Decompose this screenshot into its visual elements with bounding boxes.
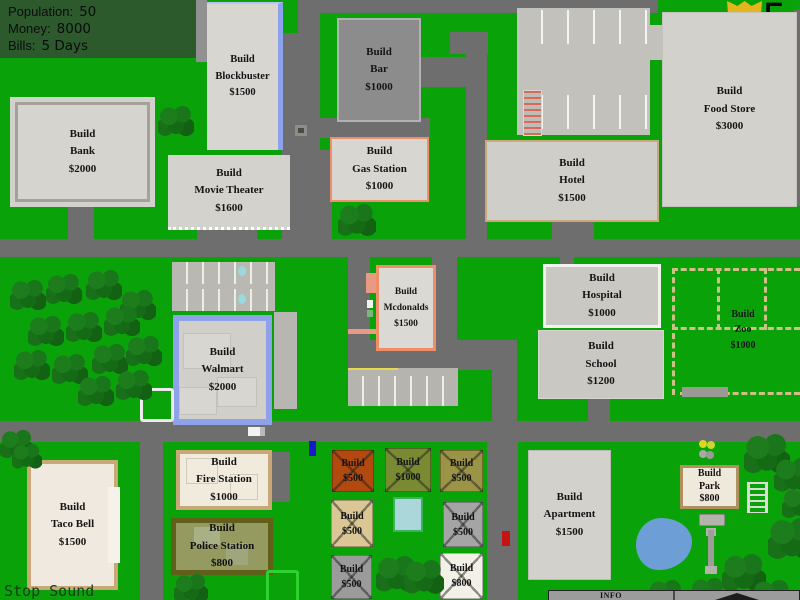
seesaw-pole (705, 566, 717, 574)
build-hotel-button[interactable]: Build Hotel $1500 (485, 140, 659, 222)
build-mcdonalds-button[interactable]: Build Mcdonalds $1500 (376, 265, 436, 351)
white-car (248, 427, 265, 436)
build-fire-station-button[interactable]: Build Fire Station $1000 (176, 450, 272, 510)
label: Build (731, 307, 754, 323)
label: Build (216, 165, 242, 183)
label: $1500 (394, 316, 418, 332)
building-edge (196, 0, 207, 62)
mcdonalds-parking-lot (348, 368, 458, 406)
build-school-button[interactable]: Build School $1200 (538, 330, 664, 399)
build-bank-button[interactable]: Build Bank $2000 (10, 97, 155, 207)
build-lot-button[interactable]: Build $800 (440, 553, 483, 599)
stone-icon (706, 451, 714, 459)
label: Build (557, 489, 583, 507)
tree (10, 280, 46, 312)
zoo-shed (682, 387, 728, 397)
label: Bar (370, 61, 388, 79)
label: Gas Station (352, 161, 407, 179)
label: Fire Station (196, 471, 252, 489)
label: $500 (342, 577, 362, 592)
road (68, 207, 94, 239)
label: Food Store (704, 101, 755, 119)
pond (636, 518, 692, 570)
label: $800 (452, 576, 472, 591)
label: Apartment (544, 506, 596, 524)
label: Build (366, 44, 392, 62)
build-blockbuster-button[interactable]: Build Blockbuster $1500 (207, 2, 283, 150)
tree (86, 270, 122, 302)
ladder (747, 482, 768, 513)
hotel-parking-lot (517, 8, 650, 135)
swimming-pool (393, 497, 423, 532)
label: $500 (343, 471, 363, 486)
city-map: Population:50 Money:8000 Bills:5 Days +5… (0, 0, 800, 600)
road (588, 397, 610, 421)
label: Taco Bell (51, 516, 94, 534)
label: $1500 (59, 534, 87, 552)
label: Park (699, 481, 720, 494)
label: Build (210, 344, 236, 362)
tree (768, 518, 800, 562)
build-food-store-button[interactable]: Build Food Store $3000 (662, 12, 797, 207)
stats-panel: Population:50 Money:8000 Bills:5 Days (0, 0, 196, 58)
build-zoo-button[interactable]: Build Zoo $1000 (700, 304, 786, 356)
tree (66, 312, 102, 344)
label: Build (340, 509, 363, 524)
parking-lines (348, 376, 458, 406)
label: $3000 (716, 118, 744, 136)
label: $2000 (69, 161, 97, 179)
build-lot-button[interactable]: Build $500 (440, 450, 483, 492)
label: Walmart (201, 361, 243, 379)
label: $1500 (558, 190, 586, 208)
build-hospital-button[interactable]: Build Hospital $1000 (543, 264, 661, 328)
info-expand-cell[interactable] (675, 591, 799, 600)
label: Build (230, 52, 255, 69)
label: Build (340, 562, 363, 577)
label: $800 (211, 555, 233, 573)
label: Blockbuster (215, 69, 269, 86)
label: Build (395, 284, 417, 300)
build-lot-button[interactable]: Build $500 (443, 502, 483, 547)
flower-icon (707, 441, 715, 449)
lamp-icon (238, 294, 246, 304)
label: Police Station (190, 538, 254, 556)
tree (14, 350, 50, 382)
menu-sign (367, 300, 373, 308)
label: Build (367, 143, 393, 161)
label: Build (70, 126, 96, 144)
label: Hotel (559, 172, 585, 190)
label: $800 (700, 493, 720, 506)
court (266, 570, 299, 600)
label: Movie Theater (194, 182, 263, 200)
build-lot-button[interactable]: Build $500 (332, 450, 374, 492)
label: Build (698, 468, 721, 481)
tree (28, 316, 64, 348)
money-value: 8000 (57, 21, 91, 37)
label: Mcdonalds (384, 300, 429, 316)
food-store-connector (650, 25, 662, 60)
side-entrance (108, 487, 120, 563)
expand-triangle-icon[interactable] (715, 593, 759, 600)
population-value: 50 (79, 4, 96, 20)
label: Zoo (735, 322, 752, 338)
road (487, 442, 518, 600)
label: $500 (452, 471, 472, 486)
lamp-icon (238, 266, 246, 276)
label: Build (717, 83, 743, 101)
label: Build (60, 499, 86, 517)
bills-label: Bills: (8, 38, 35, 53)
road (560, 250, 574, 265)
road (0, 239, 800, 257)
stop-sound-button[interactable]: Stop Sound (4, 582, 94, 600)
yellow-curb-line (348, 368, 398, 370)
label: Build (209, 520, 235, 538)
tree (78, 376, 114, 408)
tree (104, 306, 140, 338)
label: $500 (342, 524, 362, 539)
label: $1500 (556, 524, 584, 542)
label: Build (450, 561, 473, 576)
tree (46, 274, 82, 306)
build-apartment-button[interactable]: Build Apartment $1500 (528, 450, 611, 580)
zoo-fence (672, 268, 675, 395)
label: $1000 (210, 489, 238, 507)
build-lot-button[interactable]: Build $500 (331, 555, 372, 599)
tree (12, 444, 42, 470)
menu-sign (367, 310, 373, 317)
build-movie-theater-button[interactable]: Build Movie Theater $1600 (168, 155, 290, 230)
label: Build (341, 456, 364, 471)
walmart-parking-lot (172, 262, 275, 311)
label: $1000 (588, 305, 616, 323)
blue-car (309, 441, 316, 456)
label: Hospital (582, 287, 622, 305)
build-park-button[interactable]: Build Park $800 (680, 465, 739, 509)
parking-lines (172, 289, 275, 311)
parking-lines (517, 10, 650, 44)
label: $1500 (229, 85, 255, 102)
bills-value: 5 Days (41, 38, 88, 54)
drive-thru-strip (348, 329, 376, 334)
build-lot-button[interactable]: Build $1000 (385, 448, 431, 492)
zoo-fence (672, 268, 800, 271)
tree (338, 204, 376, 238)
label: $1000 (731, 338, 756, 354)
tree (782, 488, 800, 520)
label: $1000 (396, 470, 421, 485)
label: $2000 (209, 379, 237, 397)
build-walmart-button[interactable]: Build Walmart $2000 (173, 315, 272, 425)
label: $1000 (366, 178, 394, 196)
label: $1000 (365, 79, 393, 97)
info-bar[interactable]: INFO (548, 590, 800, 600)
bench (699, 514, 725, 526)
build-lot-button[interactable]: Build $500 (331, 500, 373, 547)
road (140, 442, 163, 600)
label: School (585, 356, 616, 374)
label: Build (450, 456, 473, 471)
label: $1200 (587, 373, 615, 391)
road (0, 421, 800, 442)
road (466, 32, 487, 239)
tree (158, 106, 194, 138)
label: Build (396, 455, 419, 470)
seesaw-pole (708, 530, 714, 571)
road (492, 368, 517, 422)
build-gas-station-button[interactable]: Build Gas Station $1000 (330, 137, 429, 202)
tree (404, 560, 444, 596)
label: $500 (453, 525, 473, 540)
tree (116, 370, 152, 402)
label: Bank (70, 143, 95, 161)
build-taco-bell-button[interactable]: Build Taco Bell $1500 (27, 460, 118, 590)
fire-escape (523, 90, 542, 136)
road (417, 57, 469, 87)
label: Build (588, 338, 614, 356)
population-label: Population: (8, 4, 73, 19)
drive-thru-strip (366, 273, 376, 293)
tree (174, 574, 208, 600)
flower-icon (699, 440, 707, 448)
money-label: Money: (8, 21, 51, 36)
label: Build (589, 270, 615, 288)
label: Build (451, 510, 474, 525)
build-police-station-button[interactable]: Build Police Station $800 (171, 518, 273, 575)
label: $1600 (215, 200, 243, 218)
label: Build (211, 454, 237, 472)
road (290, 150, 332, 240)
red-car (502, 531, 510, 546)
build-bar-button[interactable]: Build Bar $1000 (337, 18, 421, 122)
parking-lines (172, 262, 275, 284)
label: Build (559, 155, 585, 173)
walmart-driveway (274, 312, 297, 409)
tree (126, 336, 162, 368)
manhole (295, 125, 307, 136)
info-label[interactable]: INFO (549, 591, 675, 600)
